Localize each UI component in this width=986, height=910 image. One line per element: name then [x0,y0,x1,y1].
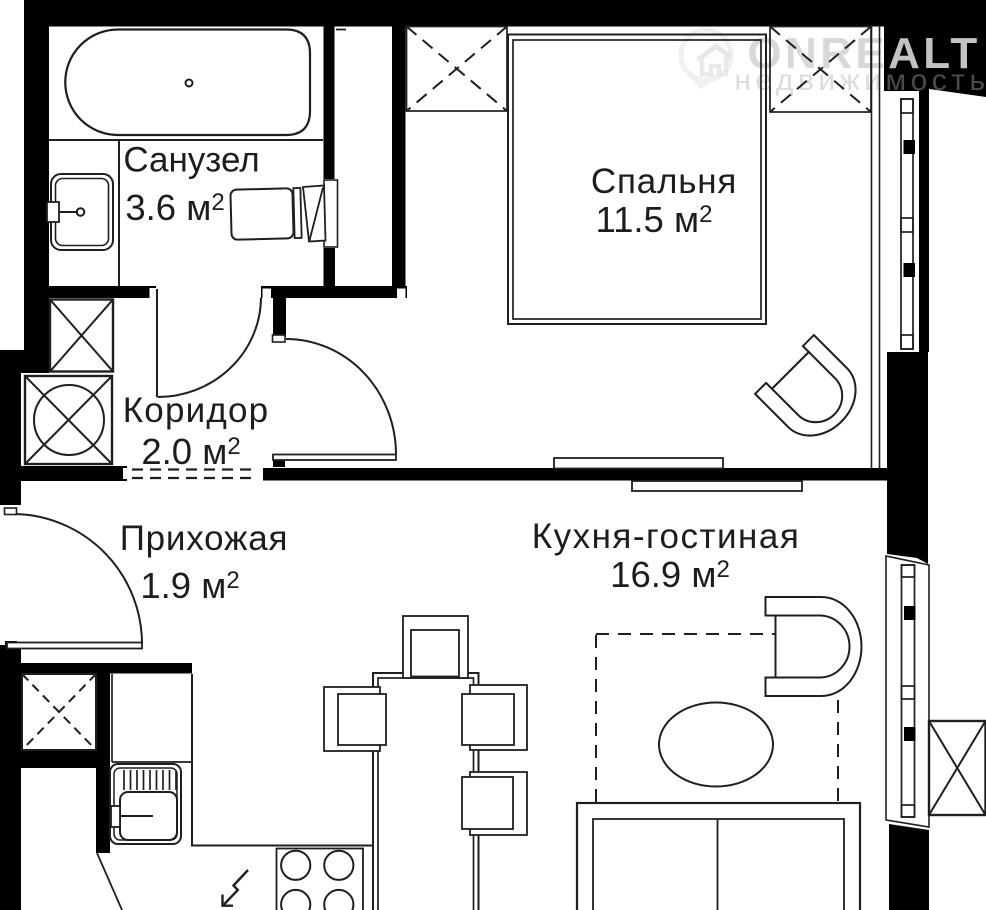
svg-text:2.0 м2: 2.0 м2 [141,431,240,472]
svg-text:Кухня-гостиная: Кухня-гостиная [532,517,801,556]
svg-text:16.9 м2: 16.9 м2 [610,554,730,595]
svg-text:Спальня: Спальня [591,162,737,201]
svg-text:1.9 м2: 1.9 м2 [140,565,239,606]
svg-text:Прихожая: Прихожая [120,519,289,558]
svg-text:3.6 м2: 3.6 м2 [125,187,224,228]
svg-text:11.5 м2: 11.5 м2 [596,199,713,240]
svg-text:Коридор: Коридор [123,391,270,430]
svg-text:Санузел: Санузел [123,141,259,180]
